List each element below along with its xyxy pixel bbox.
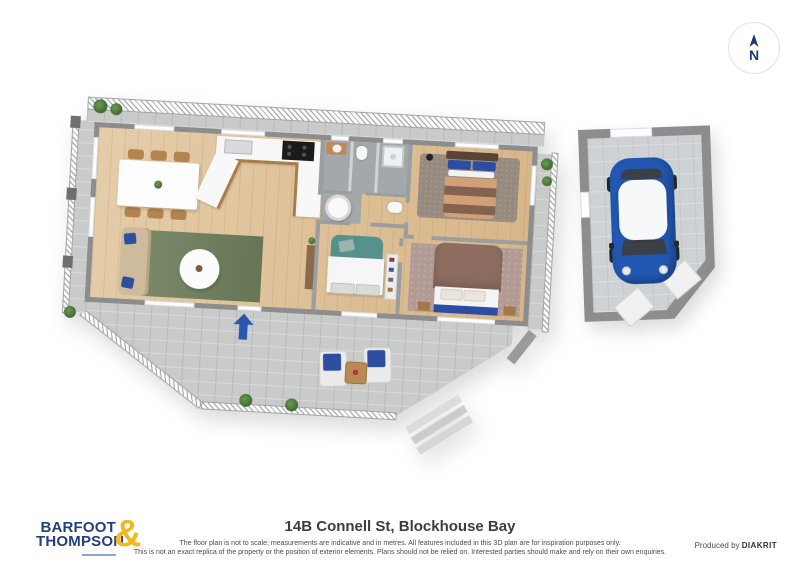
window bbox=[455, 142, 499, 149]
credit-brand: DIAKRIT bbox=[742, 541, 777, 550]
garage bbox=[578, 125, 717, 321]
bedroom1-bed bbox=[443, 151, 499, 220]
deck-post bbox=[70, 116, 81, 129]
sliding-door bbox=[88, 197, 95, 237]
sofa-pillow bbox=[121, 276, 135, 289]
dining-chair bbox=[170, 209, 187, 220]
compass: N bbox=[728, 22, 780, 74]
interior-wall bbox=[399, 238, 403, 246]
interior-wall bbox=[370, 223, 404, 229]
potted-plant bbox=[64, 306, 77, 319]
dining-chair bbox=[124, 207, 141, 218]
garage-side-door bbox=[610, 127, 652, 137]
sofa-pillow bbox=[124, 233, 137, 245]
floorplan-page: N bbox=[0, 0, 800, 584]
compass-north-label: N bbox=[749, 48, 759, 62]
window bbox=[134, 124, 174, 131]
shoe-rack bbox=[384, 253, 399, 300]
shower bbox=[382, 145, 405, 168]
window bbox=[331, 135, 349, 141]
dining-chair bbox=[173, 151, 190, 162]
dining-chair bbox=[147, 208, 164, 219]
kitchen-stove bbox=[282, 141, 315, 162]
car bbox=[609, 157, 677, 285]
dining-chair bbox=[128, 149, 145, 160]
credit-prefix: Produced by bbox=[695, 541, 740, 550]
toilet bbox=[387, 201, 403, 213]
outdoor-table bbox=[344, 361, 367, 384]
garage-side-door bbox=[580, 192, 590, 218]
kitchen-counter bbox=[195, 151, 242, 210]
sliding-door bbox=[91, 137, 98, 179]
lounge-chair bbox=[363, 347, 391, 383]
dining-table bbox=[117, 159, 199, 209]
sofa bbox=[118, 227, 152, 297]
lounge-chair bbox=[319, 350, 347, 386]
master-bed bbox=[431, 242, 503, 318]
kitchen-sink bbox=[224, 139, 253, 155]
dining-chair bbox=[151, 150, 168, 161]
deck-post bbox=[62, 255, 73, 268]
floor-plan bbox=[59, 96, 587, 469]
disclaimer-line-2: This is not an exact replica of the prop… bbox=[90, 548, 710, 557]
nightstand bbox=[503, 306, 515, 316]
nightstand bbox=[418, 301, 430, 311]
patio-steps bbox=[395, 406, 475, 450]
deck-post bbox=[66, 188, 77, 201]
interior-wall bbox=[404, 234, 414, 239]
toilet bbox=[356, 146, 368, 161]
producer-credit: Produced by DIAKRIT bbox=[695, 541, 777, 550]
house-plan bbox=[85, 122, 538, 327]
compass-north-arrow-icon bbox=[748, 34, 760, 47]
page-title: 14B Connell St, Blockhouse Bay bbox=[0, 518, 800, 535]
table-centerpiece bbox=[154, 180, 162, 188]
bathroom-vanity bbox=[326, 142, 347, 155]
bedroom2-bed bbox=[326, 234, 385, 301]
window bbox=[221, 129, 265, 136]
window bbox=[383, 138, 403, 144]
car-roof bbox=[618, 179, 668, 241]
